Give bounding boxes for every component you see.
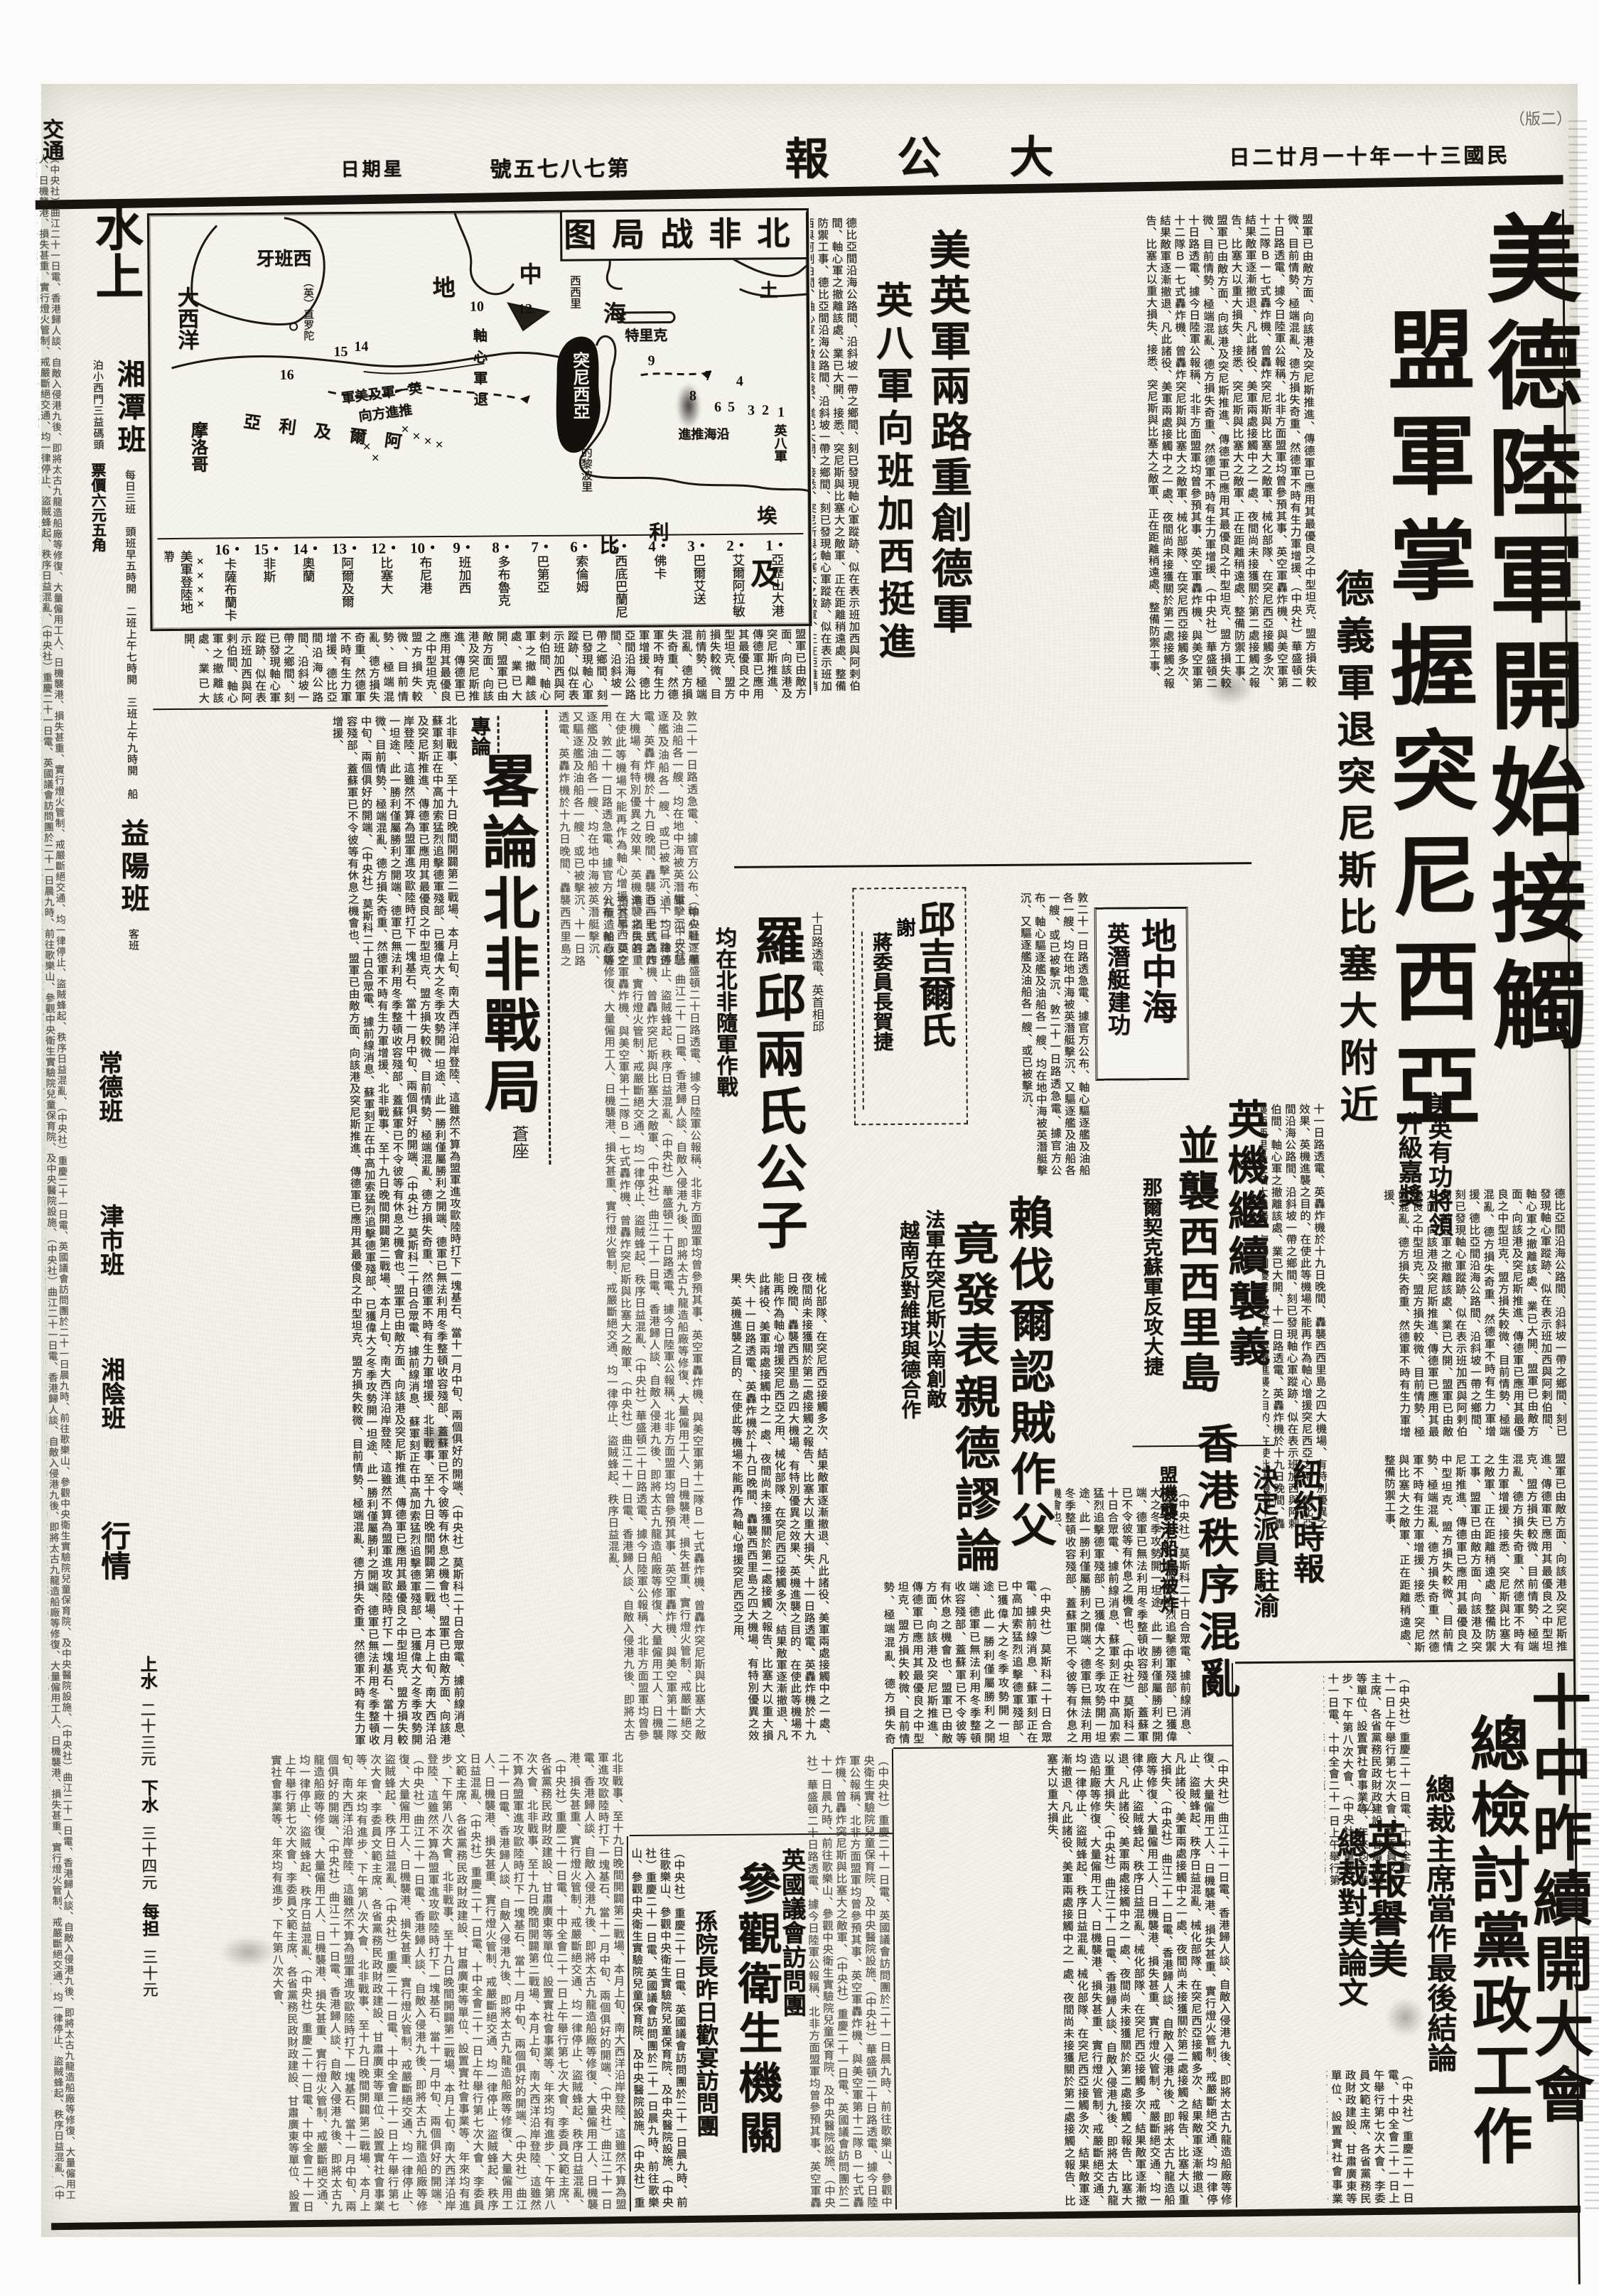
map-label-spain: 西班牙 bbox=[256, 244, 311, 271]
map-legend-place-name: 奧蘭 bbox=[298, 556, 317, 582]
rail-item-jinshi: 津市班 bbox=[92, 1204, 127, 1339]
map-legend-item: 12・比塞大 bbox=[370, 540, 404, 621]
mid-section-rule bbox=[734, 862, 1251, 868]
rail-item-yiyang: 益陽班 客班 bbox=[68, 818, 154, 1032]
map-legend-place-name: 卡薩布蘭卡 bbox=[220, 557, 239, 621]
rail-item-xiangtan: 湘潭班 每日三班 頭班早五時開 二班上午七時開 三班上午九時開 船泊小西門三益碼… bbox=[63, 359, 152, 800]
headline-submarine-success: 英潛艇建功 bbox=[1101, 922, 1135, 1064]
rail-item-changde: 常德班 bbox=[90, 1050, 126, 1185]
plenum-article-body-2: （中央社）重慶二十一日電、十中全會二十一日上午舉行第七次大會、李委員文範主席、各… bbox=[1326, 2069, 1414, 2204]
landing-zone-marks: ×××× bbox=[195, 554, 208, 611]
map-label-axis-retreat: 軸心軍退 bbox=[468, 328, 490, 414]
map-legend-item: 10・布尼港 bbox=[409, 540, 443, 621]
sons-kicker-text: 十日路透電、英首相邱 bbox=[807, 912, 827, 1146]
map-legend-item: 8・多布魯克 bbox=[487, 539, 521, 620]
date-line: 民國三十一年十一月廿二日 bbox=[1229, 139, 1510, 171]
rail-item-market: 行情 bbox=[91, 1520, 135, 1634]
map-label-turkey: 土 bbox=[760, 276, 778, 302]
headline-laval-1: 賴伐爾認賊作父 bbox=[994, 1194, 1062, 1564]
map-legend-place-name: 班加西 bbox=[455, 556, 473, 594]
right-mid-body-2: 盟軍已由敵方面、向該港及突尼斯推進、傳德軍已應用其最優良之中型坦克、盟方損失較微… bbox=[1325, 1453, 1568, 1654]
map-legend-number: 12・ bbox=[371, 540, 401, 556]
bottom-band-rule bbox=[893, 1745, 1233, 1749]
plenum-deck: 總裁主席當作最後結論 bbox=[1416, 1774, 1463, 2186]
editorial-title: 畧論北非戰局 bbox=[463, 751, 549, 1128]
headline-commanders-promoted-2: 升級嘉獎 bbox=[1390, 1111, 1426, 1253]
map-legend-place-name: 佛卡 bbox=[650, 554, 669, 580]
headline-us-uk-strike: 美英軍兩路重創德軍 bbox=[915, 228, 979, 669]
svg-text:14: 14 bbox=[354, 339, 368, 355]
lead-article-body: 盟軍已由敵方面、向該港及突尼斯推進、傳德軍已應用其最優良之中型坦克、盟方損失較微… bbox=[984, 213, 1317, 691]
map-legend-landing-zones: 美軍登陸地帶×××× bbox=[165, 542, 208, 623]
rail-rates: 上水 二十三元 下水 三十四元 每担 三十元 bbox=[74, 1655, 162, 2054]
map-legend-number: 5・ bbox=[609, 539, 632, 554]
bottom-band-vrule-right bbox=[1232, 1663, 1237, 2207]
map-legend-number: 8・ bbox=[492, 539, 515, 555]
visit-right-columns: （中央社）重慶二十一日電、英國議會訪問團於二十一日晨九時、前往歌樂山、參觀中央衛… bbox=[805, 1755, 893, 2209]
hk-article-body: （中央社）曲江二十一日電、香港歸人談、自敵入侵港九後、即將太古九龍造船廠等修復、… bbox=[896, 1752, 1232, 2208]
visit-article-body: （中央社）重慶二十一日電、英國議會訪問團於二十一日晨九時、前往歌樂山、參觀中央衛… bbox=[631, 1847, 688, 2209]
newspaper-page: 星期日 第七八七五號 大公報 民國三十一年十一月廿二日 （二版） （中央社）曲江… bbox=[41, 84, 1578, 2237]
churchill-thanks-box: 邱吉爾氏 謝 蔣委員長賀捷 bbox=[852, 887, 968, 1125]
issue-number: 第七八七五號 bbox=[490, 151, 630, 183]
map-label-eighth-army: 英八軍 bbox=[770, 424, 789, 462]
under-map-text: 盟軍已由敵方面、向該港及突尼斯推進、傳德軍已應用其最優良之中型坦克、盟方損失較微… bbox=[153, 628, 807, 704]
map-legend-item: 4・佛卡 bbox=[642, 538, 677, 619]
map-label-morocco: 摩洛哥 bbox=[185, 421, 210, 473]
map-label-med-2: 中 bbox=[519, 257, 542, 289]
map-legend-number: 16・ bbox=[215, 541, 244, 557]
headline-hongkong-disorder: 香港秩序混亂 bbox=[1183, 1422, 1245, 1721]
headline-leader-us-essay: 總裁對美論文 bbox=[1328, 1828, 1373, 2055]
headline-roosevelt-churchill-sons: 羅邱兩氏公子 bbox=[738, 914, 815, 1263]
map-legend: 1・亞歷山大港2・艾爾阿拉敏3・巴爾艾送4・佛卡5・西底巴蘭尼6・索倫姆7・巴第… bbox=[157, 533, 804, 625]
svg-text:1: 1 bbox=[777, 404, 785, 420]
map-legend-number: 9・ bbox=[453, 540, 475, 556]
map-legend-place-name: 非斯 bbox=[259, 557, 278, 583]
praise-marks: △△ bbox=[1357, 1798, 1377, 1813]
map-legend-place-name: 巴爾艾送 bbox=[689, 554, 709, 605]
map-legend-place-name: 布尼港 bbox=[416, 556, 434, 594]
map-legend-number: 4・ bbox=[648, 539, 671, 554]
map-legend-number: 6・ bbox=[570, 539, 593, 554]
map-legend-number: 3・ bbox=[687, 538, 710, 554]
headline-mediterranean: 地中海 bbox=[1131, 917, 1183, 1060]
headline-nyt-correspondent: 決定派員駐渝 bbox=[1245, 1465, 1283, 1664]
map-legend-number: 15・ bbox=[254, 541, 284, 557]
svg-text:×: × bbox=[372, 451, 380, 466]
map-legend-item: 16・卡薩布蘭卡 bbox=[213, 541, 247, 622]
svg-text:5: 5 bbox=[728, 399, 735, 415]
map-legend-item: 3・巴爾艾送 bbox=[682, 538, 716, 619]
svg-text:15: 15 bbox=[333, 344, 348, 360]
map-title: 北非战局图 bbox=[560, 208, 809, 262]
map-label-tunisia: 突尼西亞 bbox=[566, 351, 592, 419]
sons-article-body: 械化部隊、在突尼西亞接觸多次、結果敵軍逐漸撤退、凡此諸役、美軍兩處接觸中之一處、… bbox=[706, 1272, 831, 1742]
ink-smudge bbox=[1205, 670, 1254, 706]
map-legend-number: 14・ bbox=[293, 541, 323, 556]
masthead-title: 大公報 bbox=[785, 121, 1122, 188]
map-legend-place-name: 艾爾阿拉敏 bbox=[728, 554, 748, 618]
map-legend-number: 2・ bbox=[726, 538, 749, 554]
landing-zone-label: 美軍登陸地帶 bbox=[165, 550, 195, 615]
rail-section-water: 水上 bbox=[80, 203, 151, 338]
plenum-top-rule bbox=[1235, 1659, 1575, 1664]
headline-visit-health-organs: 參觀衛生機關 bbox=[722, 1860, 788, 2167]
editorial-body: 北非戰事、至十九日晚間開闢第二戰場、本月上旬、南大西洋沿岸登陸、這雖然不算為盟軍… bbox=[153, 715, 465, 1747]
editorial-top-rule bbox=[153, 705, 608, 710]
weekday-label: 星期日 bbox=[340, 154, 404, 181]
visit-vrule bbox=[627, 1836, 631, 2211]
svg-text:4: 4 bbox=[736, 374, 743, 389]
map-legend-number: 13・ bbox=[332, 541, 362, 556]
churchill-deck: 蔣委員長賀捷 bbox=[861, 932, 896, 1109]
map-legend-item: 15・非斯 bbox=[252, 541, 286, 622]
map-legend-place-name: 西底巴蘭尼 bbox=[611, 554, 630, 618]
map-legend-number: 10・ bbox=[410, 540, 440, 556]
svg-text:2: 2 bbox=[762, 402, 769, 418]
headline-sons-deck: 均在北非隨軍作戰 bbox=[708, 927, 741, 1225]
svg-text:6: 6 bbox=[714, 399, 721, 415]
map-legend-item: 14・奧蘭 bbox=[291, 541, 325, 622]
laval-article-body: （中央社）莫斯科二十日合眾電、據前線消息、蘇軍刻正在中高加索猛烈追擊德軍殘部、已… bbox=[882, 1580, 1052, 1745]
editorial-byline: 蒼座 bbox=[506, 1125, 531, 1159]
map-label-gibraltar: （英）直罗陀 bbox=[301, 276, 316, 340]
visit-deck: 孫院長昨日歡宴訪問團 bbox=[689, 1909, 723, 2194]
headline-nalchik-counterattack: 那爾契克蘇軍反攻大捷 bbox=[1136, 1177, 1167, 1425]
map-label-egypt-1: 埃 bbox=[757, 500, 777, 529]
north-africa-war-map: 161514 1012. 978 465 321 ××× ××× 北非战局图 大… bbox=[147, 208, 812, 631]
map-legend-item: 7・巴第亞 bbox=[526, 539, 560, 620]
ink-smudge bbox=[1386, 1998, 1425, 2037]
map-legend-place-name: 索倫姆 bbox=[572, 554, 591, 593]
headline-nyt: 紐約時報 bbox=[1282, 1458, 1329, 1615]
map-label-med-1: 地 bbox=[433, 270, 456, 303]
svg-text:16: 16 bbox=[280, 367, 294, 383]
svg-text:10: 10 bbox=[470, 299, 484, 315]
svg-text:12.: 12. bbox=[518, 301, 536, 317]
map-legend-item: 13・阿爾及爾 bbox=[330, 541, 365, 622]
map-label-tripoli: 的黎波里 bbox=[576, 446, 593, 492]
page-edition-label: （二版） bbox=[1509, 107, 1572, 130]
map-legend-place-name: 巴第亞 bbox=[533, 555, 551, 593]
map-legend-place-name: 多布魯克 bbox=[494, 555, 513, 606]
svg-text:×: × bbox=[424, 433, 432, 449]
svg-text:7: 7 bbox=[705, 368, 712, 384]
med-article-body: 敦二十一日路透急電、據官方公布、軸心驅逐艦及油船各一艘、均在地中海被英潛艇擊沉、… bbox=[969, 892, 1090, 1177]
headline-plenum-2: 總檢討黨政工作 bbox=[1451, 1713, 1541, 2182]
map-legend-item: 6・索倫姆 bbox=[565, 539, 599, 620]
ink-smudge bbox=[677, 383, 701, 429]
map-label-med-3: 海 bbox=[603, 296, 626, 328]
hk-deck: 盟機襲港船塢被炸 bbox=[1154, 1465, 1183, 1693]
mid-left-columns: （中央社）華盛頓二十日路透電、據今日陸軍公報稱、北非方面盟軍均曾參預其事、英空軍… bbox=[568, 895, 706, 1741]
map-label-atlantic: 大西洋 bbox=[170, 286, 202, 350]
map-legend-place-name: 比塞大 bbox=[377, 556, 395, 595]
svg-text:3: 3 bbox=[748, 403, 755, 419]
svg-text:9: 9 bbox=[647, 353, 655, 369]
lead-article-left-column: 德比亞間沿海公路間、沿斜坡一帶之鄉間、刻已發現軸心軍蹤跡、似在表示班加西與阿剌伯… bbox=[810, 217, 861, 691]
left-rail-top-label: 交通 bbox=[35, 118, 66, 161]
svg-text:×: × bbox=[435, 437, 443, 453]
map-label-sicily: 西西里 bbox=[565, 274, 582, 308]
headline-eighth-army: 英八軍向班加西挺進 bbox=[863, 281, 920, 708]
rail-item-xiangyin: 湘陰班 bbox=[93, 1357, 129, 1492]
map-label-egypt-2: 及 bbox=[750, 550, 780, 593]
map-label-crete: 克里特 bbox=[625, 324, 667, 345]
map-legend-item: 9・班加西 bbox=[448, 540, 482, 621]
map-legend-place-name: 阿爾及爾 bbox=[338, 556, 357, 608]
bottom-left-columns: 北非戰事、至十九日晚間開闢第二戰場、本月上旬、南大西洋沿岸登陸、這雖然不算為盟軍… bbox=[161, 1752, 627, 2214]
med-submarine-box: 地中海 英潛艇建功 bbox=[1094, 907, 1190, 1081]
map-legend-item: 5・西底巴蘭尼 bbox=[604, 539, 638, 620]
map-legend-number: 7・ bbox=[531, 539, 554, 555]
